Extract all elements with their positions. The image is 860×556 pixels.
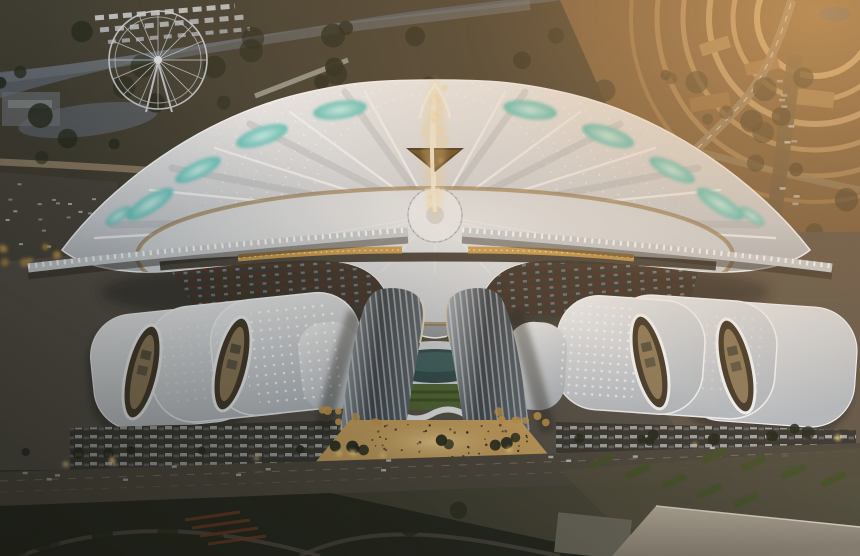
aerial-rendering-exhibition-complex	[0, 0, 860, 556]
vignette-overlay	[0, 0, 860, 556]
scene-canvas	[0, 0, 860, 556]
